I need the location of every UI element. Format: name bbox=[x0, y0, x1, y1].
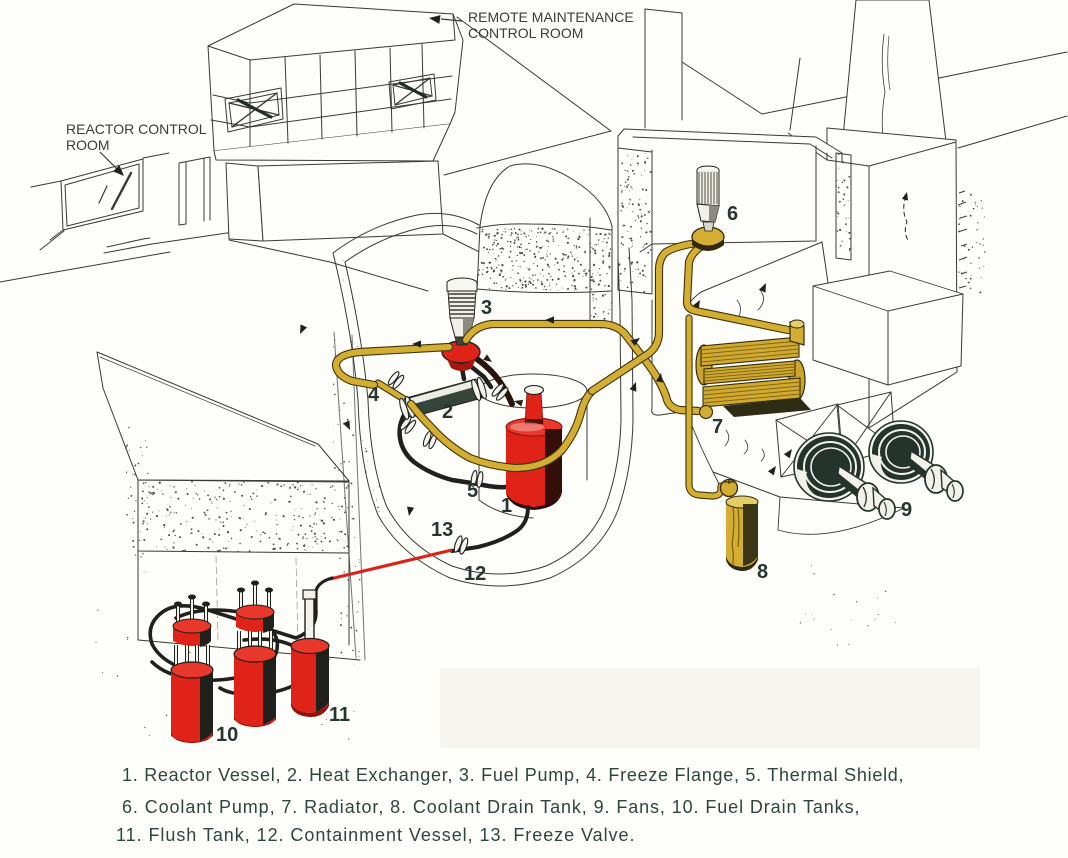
svg-text:10: 10 bbox=[216, 724, 238, 746]
svg-text:11. Flush Tank, 12. Containm: 11. Flush Tank, 12. Containment Vessel, … bbox=[116, 825, 635, 845]
svg-text:6. Coolant Pump, 7. Radiator: 6. Coolant Pump, 7. Radiator, 8. Coolant… bbox=[122, 797, 860, 817]
svg-text:REACTOR CONTROL: REACTOR CONTROL bbox=[66, 121, 207, 137]
svg-text:1. Reactor Vessel, 2. Heat E: 1. Reactor Vessel, 2. Heat Exchanger, 3.… bbox=[122, 765, 904, 785]
svg-text:ROOM: ROOM bbox=[66, 137, 110, 153]
svg-text:5: 5 bbox=[467, 480, 478, 502]
svg-text:7: 7 bbox=[712, 416, 723, 438]
svg-text:6: 6 bbox=[727, 203, 738, 225]
svg-text:11: 11 bbox=[329, 704, 350, 726]
svg-text:8: 8 bbox=[757, 561, 768, 583]
svg-text:12: 12 bbox=[464, 563, 486, 585]
svg-text:9: 9 bbox=[901, 499, 912, 521]
svg-text:13: 13 bbox=[431, 519, 453, 541]
svg-text:CONTROL ROOM: CONTROL ROOM bbox=[468, 25, 583, 41]
svg-text:3: 3 bbox=[481, 297, 492, 319]
svg-text:4: 4 bbox=[368, 384, 380, 406]
svg-text:2: 2 bbox=[442, 401, 453, 423]
svg-text:REMOTE MAINTENANCE: REMOTE MAINTENANCE bbox=[468, 9, 634, 25]
svg-text:1: 1 bbox=[501, 495, 512, 517]
